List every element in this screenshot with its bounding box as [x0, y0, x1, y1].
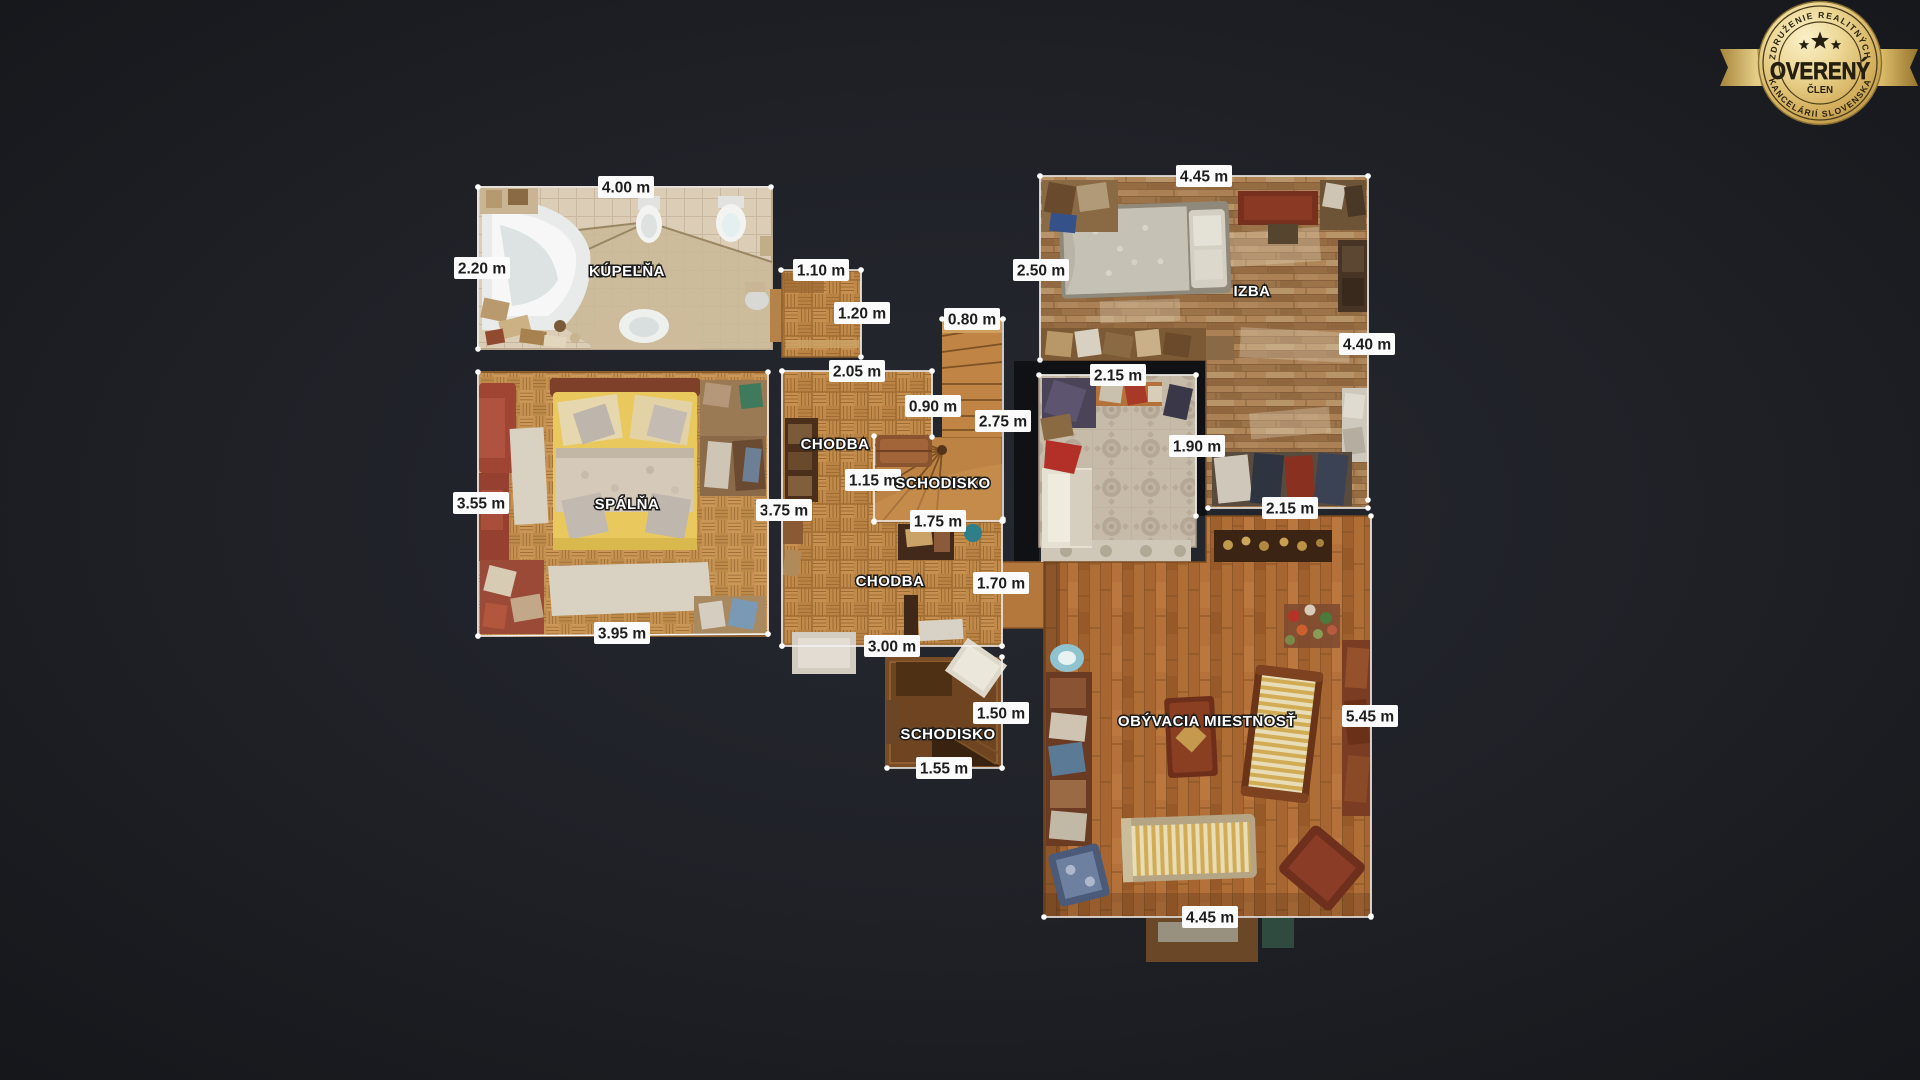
svg-text:4.00 m: 4.00 m: [602, 180, 650, 197]
svg-text:2.75 m: 2.75 m: [979, 414, 1027, 431]
svg-text:2.50 m: 2.50 m: [1017, 263, 1065, 280]
svg-text:1.55 m: 1.55 m: [920, 761, 968, 778]
svg-text:OVERENÝ: OVERENÝ: [1770, 57, 1870, 85]
svg-text:OBÝVACIA MIESTNOSŤ: OBÝVACIA MIESTNOSŤ: [1118, 712, 1296, 730]
svg-text:IZBA: IZBA: [1234, 283, 1271, 300]
svg-text:5.45 m: 5.45 m: [1346, 709, 1394, 726]
svg-text:CHODBA: CHODBA: [856, 573, 925, 590]
svg-text:0.80 m: 0.80 m: [948, 312, 996, 329]
svg-text:3.75 m: 3.75 m: [760, 503, 808, 520]
svg-text:SCHODISKO: SCHODISKO: [895, 475, 990, 492]
svg-text:CHODBA: CHODBA: [801, 436, 870, 453]
svg-text:1.15 m: 1.15 m: [849, 473, 897, 490]
svg-text:4.45 m: 4.45 m: [1186, 910, 1234, 927]
svg-text:2.20 m: 2.20 m: [458, 261, 506, 278]
svg-text:1.90 m: 1.90 m: [1173, 439, 1221, 456]
svg-text:3.00 m: 3.00 m: [868, 639, 916, 656]
svg-text:1.10 m: 1.10 m: [797, 263, 845, 280]
svg-text:2.05 m: 2.05 m: [833, 364, 881, 381]
svg-text:1.20 m: 1.20 m: [838, 306, 886, 323]
svg-text:1.50 m: 1.50 m: [977, 706, 1025, 723]
svg-text:KÚPEĽŇA: KÚPEĽŇA: [589, 262, 665, 280]
svg-text:4.45 m: 4.45 m: [1180, 169, 1228, 186]
svg-text:2.15 m: 2.15 m: [1094, 368, 1142, 385]
svg-text:ČLEN: ČLEN: [1807, 83, 1833, 96]
svg-text:1.70 m: 1.70 m: [977, 576, 1025, 593]
svg-text:4.40 m: 4.40 m: [1343, 337, 1391, 354]
svg-text:3.95 m: 3.95 m: [598, 626, 646, 643]
svg-text:SCHODISKO: SCHODISKO: [900, 726, 995, 743]
svg-text:2.15 m: 2.15 m: [1266, 501, 1314, 518]
svg-text:1.75 m: 1.75 m: [914, 514, 962, 531]
svg-text:3.55 m: 3.55 m: [457, 496, 505, 513]
svg-text:SPÁLŇA: SPÁLŇA: [595, 495, 660, 513]
svg-text:0.90 m: 0.90 m: [909, 399, 957, 416]
